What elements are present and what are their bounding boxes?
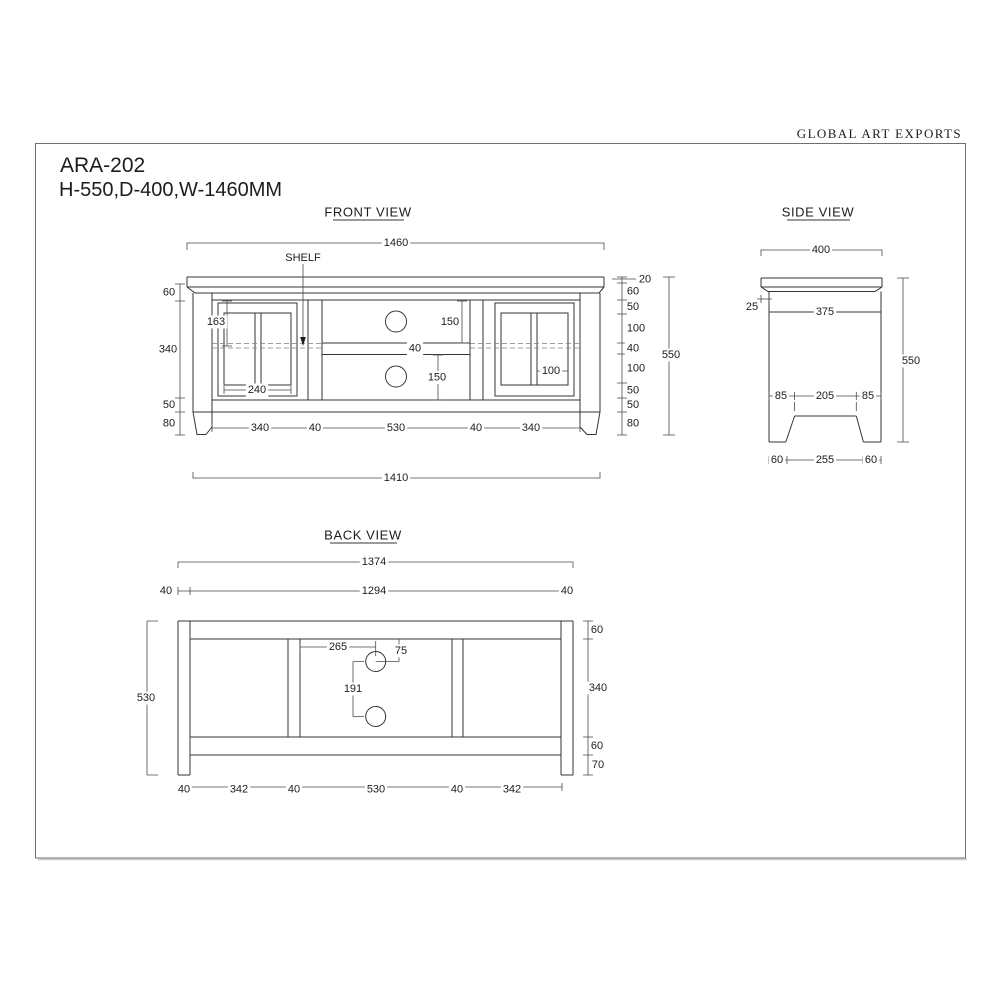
- dim-back-hole-offset-v: 75: [395, 645, 407, 657]
- model-dimensions: H-550,D-400,W-1460MM: [59, 179, 282, 201]
- dim-side-mid-2: 85: [862, 390, 874, 402]
- dim-front-width-base: 1410: [384, 472, 408, 484]
- dim-front-shelf-thickness: 40: [409, 343, 421, 355]
- dim-back-bottom-3: 530: [367, 784, 385, 796]
- dim-front-right-7: 80: [627, 418, 639, 430]
- dim-front-pane-width: 100: [542, 365, 560, 377]
- dim-front-door-to-shelf: 163: [207, 316, 225, 328]
- dim-front-opening-upper: 150: [441, 316, 459, 328]
- dim-front-right-4: 100: [627, 363, 645, 375]
- dim-back-hole-offset-h: 265: [329, 641, 347, 653]
- dim-side-overhang: 25: [746, 301, 758, 313]
- dim-side-mid-1: 205: [816, 390, 834, 402]
- dim-side-inner-depth: 375: [816, 306, 834, 318]
- dim-front-left-0: 60: [163, 287, 175, 299]
- dim-side-bottom-0: 60: [771, 454, 783, 466]
- dim-front-bottom-3: 40: [470, 422, 482, 434]
- dim-front-height: 550: [662, 349, 680, 361]
- dim-back-height: 530: [137, 692, 155, 704]
- dim-side-depth: 400: [812, 244, 830, 256]
- dim-front-right-3: 40: [627, 343, 639, 355]
- dim-side-height: 550: [902, 355, 920, 367]
- back-view-title: BACK VIEW: [324, 528, 402, 543]
- dim-front-width-top: 1460: [384, 237, 408, 249]
- dim-back-bottom-0: 40: [178, 784, 190, 796]
- model-number: ARA-202: [60, 154, 145, 177]
- dim-back-hole-gap: 191: [344, 683, 362, 695]
- side-view-title: SIDE VIEW: [782, 205, 855, 220]
- dim-front-opening-lower: 150: [428, 372, 446, 384]
- dim-back-width-inner: 1294: [362, 585, 386, 597]
- dim-front-bottom-4: 340: [522, 422, 540, 434]
- dim-front-left-3: 80: [163, 418, 175, 430]
- dim-back-bottom-2: 40: [288, 784, 300, 796]
- dim-front-left-2: 50: [163, 399, 175, 411]
- dim-back-right-1: 340: [589, 682, 607, 694]
- dim-back-leg-right: 40: [561, 585, 573, 597]
- dim-front-glass-width: 240: [248, 384, 266, 396]
- dim-back-leg-left: 40: [160, 585, 172, 597]
- dim-side-bottom-2: 60: [865, 454, 877, 466]
- drawing-sheet: GLOBAL ART EXPORTS ARA-202 H-550,D-400,W…: [0, 0, 1000, 1000]
- dim-back-right-3: 70: [592, 759, 604, 771]
- dim-back-right-0: 60: [591, 624, 603, 636]
- dim-back-right-2: 60: [591, 740, 603, 752]
- dim-back-bottom-5: 342: [503, 784, 521, 796]
- dim-back-bottom-4: 40: [451, 784, 463, 796]
- front-shelf-label: SHELF: [285, 252, 321, 264]
- dim-front-right-1: 50: [627, 301, 639, 313]
- dim-front-right-2: 100: [627, 323, 645, 335]
- dim-front-right-5: 50: [627, 385, 639, 397]
- dim-side-mid-0: 85: [775, 390, 787, 402]
- front-view-title: FRONT VIEW: [324, 205, 412, 220]
- company-name: GLOBAL ART EXPORTS: [797, 126, 962, 141]
- dim-back-width-total: 1374: [362, 556, 386, 568]
- dim-front-bottom-1: 40: [309, 422, 321, 434]
- dim-back-bottom-1: 342: [230, 784, 248, 796]
- dim-front-left-1: 340: [159, 344, 177, 356]
- dim-front-bottom-2: 530: [387, 422, 405, 434]
- dim-front-top-thickness: 20: [639, 274, 651, 286]
- dim-front-right-6: 50: [627, 399, 639, 411]
- dim-front-bottom-0: 340: [251, 422, 269, 434]
- dim-side-bottom-1: 255: [816, 454, 834, 466]
- dim-front-right-0: 60: [627, 286, 639, 298]
